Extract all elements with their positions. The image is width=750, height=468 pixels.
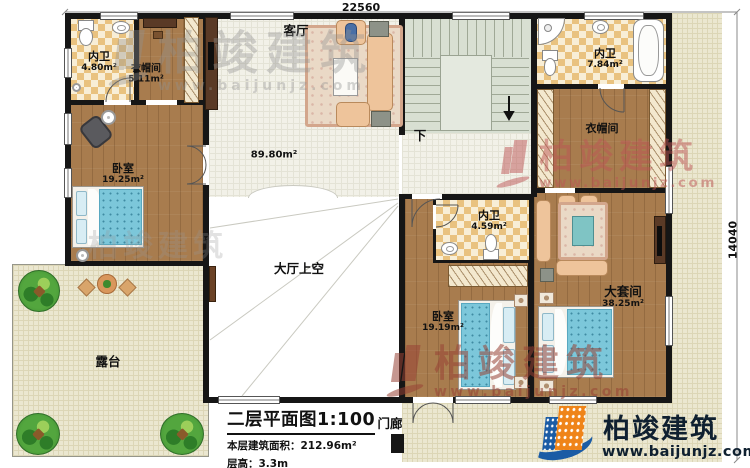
sink-icon-bath3 — [441, 242, 458, 255]
window-left-3 — [64, 168, 72, 198]
label-hall-void: 大厅上空 — [274, 262, 324, 276]
sofa-living-right — [367, 33, 393, 111]
side-table-suite — [540, 268, 554, 282]
window-left-1 — [64, 48, 72, 78]
label-bath1: 内卫 4.80m² — [81, 51, 117, 73]
stair-treads-right — [492, 57, 529, 131]
tv-icon-living — [208, 42, 214, 70]
dimension-right: 14040 — [727, 221, 740, 259]
wall-bath1-cloak1 — [134, 13, 139, 105]
stair-treads-left — [404, 57, 440, 131]
wardrobe-bedroom2 — [448, 265, 528, 287]
window-left-2 — [64, 113, 72, 145]
stair-landing — [440, 55, 492, 131]
cloak2-floor — [537, 89, 666, 188]
window-bottom-1 — [218, 396, 280, 404]
coffee-table-living — [333, 58, 358, 96]
door-gap-cloak2 — [545, 188, 575, 193]
title-block: 二层平面图1:100 本层建筑面积：212.96m² 层高：3.3m — [227, 406, 375, 468]
bed-bedroom1 — [72, 186, 144, 248]
dresser-cloak1 — [143, 18, 177, 28]
label-living: 客厅 — [283, 24, 308, 38]
door-gap-cloak1 — [146, 100, 177, 105]
label-cloak2: 衣帽间 — [586, 123, 619, 135]
person-figure — [345, 23, 357, 42]
company-logo: 柏竣建筑 www.baijunjz.com — [531, 403, 731, 465]
sink-icon-bath2 — [592, 20, 609, 34]
toilet-icon-bath3 — [482, 234, 500, 260]
sofa-suite-bottom — [556, 260, 608, 276]
label-porch: 门廊 — [377, 417, 402, 431]
label-living-area: 89.80m² — [251, 150, 297, 161]
wall-leftwing-bottom — [65, 261, 208, 266]
label-bedroom2: 卧室 19.19m² — [422, 311, 464, 333]
bathtub-icon-bath2 — [633, 19, 664, 82]
toilet-icon-bath2 — [541, 50, 559, 76]
side-table-living-1 — [369, 21, 389, 37]
window-right-1 — [665, 166, 673, 214]
window-right-2 — [665, 296, 673, 346]
side-table-living-2 — [371, 111, 391, 127]
tree-icon-1 — [18, 270, 60, 312]
plan-title: 二层平面图1:100 — [227, 406, 375, 435]
door-gap-entrance — [413, 397, 453, 403]
bed-bedroom2 — [458, 300, 516, 390]
label-terrace: 露台 — [95, 355, 120, 369]
lamp-icon-bedroom1-top — [101, 110, 116, 125]
door-gap-bath2 — [598, 84, 624, 89]
label-cloak1: 衣帽间 5.11m² — [128, 63, 164, 84]
tree-icon-2 — [16, 413, 60, 455]
lamp-icon-bedroom1 — [76, 249, 89, 262]
porch-column — [391, 434, 404, 453]
bed-suite — [538, 306, 614, 378]
label-bath2: 内卫 7.84m² — [587, 48, 623, 70]
logo-url-text: www.baijunjz.com — [602, 444, 750, 460]
nightstand-bedroom2-top — [514, 294, 528, 307]
nightstand-suite-bottom — [539, 380, 554, 392]
plan-floor-height: 层高：3.3m — [227, 456, 375, 468]
window-top-4 — [584, 12, 644, 20]
sink-icon-bath1 — [112, 21, 130, 34]
window-bottom-2 — [455, 396, 511, 404]
plan-area-line: 本层建筑面积：212.96m² — [227, 438, 375, 453]
floor-plan: 内卫 4.80m² 衣帽间 5.11m² 卧室 19.25m² 客厅 89.80… — [0, 0, 750, 468]
tree-icon-3 — [160, 413, 204, 455]
right-side-yard-floor — [672, 13, 722, 462]
wardrobe-cloak2-left — [537, 89, 554, 188]
terrace-table — [97, 274, 117, 294]
door-gap-bath1 — [104, 100, 131, 105]
logo-building-orange-icon — [555, 406, 587, 450]
window-top-1 — [100, 12, 138, 20]
dimension-top: 22560 — [342, 1, 380, 14]
window-top-3 — [452, 12, 510, 20]
floor-arc-edge — [248, 185, 338, 198]
terrace-door-panel — [209, 266, 216, 302]
logo-brand-text: 柏竣建筑 — [603, 407, 719, 446]
closet-cloak1 — [184, 17, 199, 103]
nightstand-suite-top — [539, 292, 554, 304]
sofa-suite-left — [536, 200, 551, 262]
wardrobe-cloak2-right — [649, 89, 666, 188]
tv-icon-suite — [657, 226, 662, 256]
stool-cloak1 — [153, 31, 163, 39]
door-gap-bath3 — [433, 205, 436, 229]
stair-treads-top — [404, 17, 529, 57]
table-suite — [572, 216, 594, 246]
label-bedroom1: 卧室 19.25m² — [102, 163, 144, 185]
armchair-living-bottom — [336, 102, 370, 127]
label-bath3: 内卫 4.59m² — [471, 210, 507, 232]
nightstand-bedroom2-bottom — [514, 376, 528, 389]
hall-void-area — [209, 197, 399, 397]
wall-bedroom2-left — [399, 197, 405, 402]
label-suite: 大套间 38.25m² — [602, 285, 644, 309]
toilet-icon-bath1 — [76, 20, 96, 46]
door-gap-bedroom1 — [203, 145, 209, 185]
door-gap-bedroom2 — [412, 194, 442, 199]
label-stairs-down: 下 — [414, 129, 427, 143]
towel-ring-icon-bath1 — [72, 83, 81, 92]
window-top-2 — [230, 12, 294, 20]
